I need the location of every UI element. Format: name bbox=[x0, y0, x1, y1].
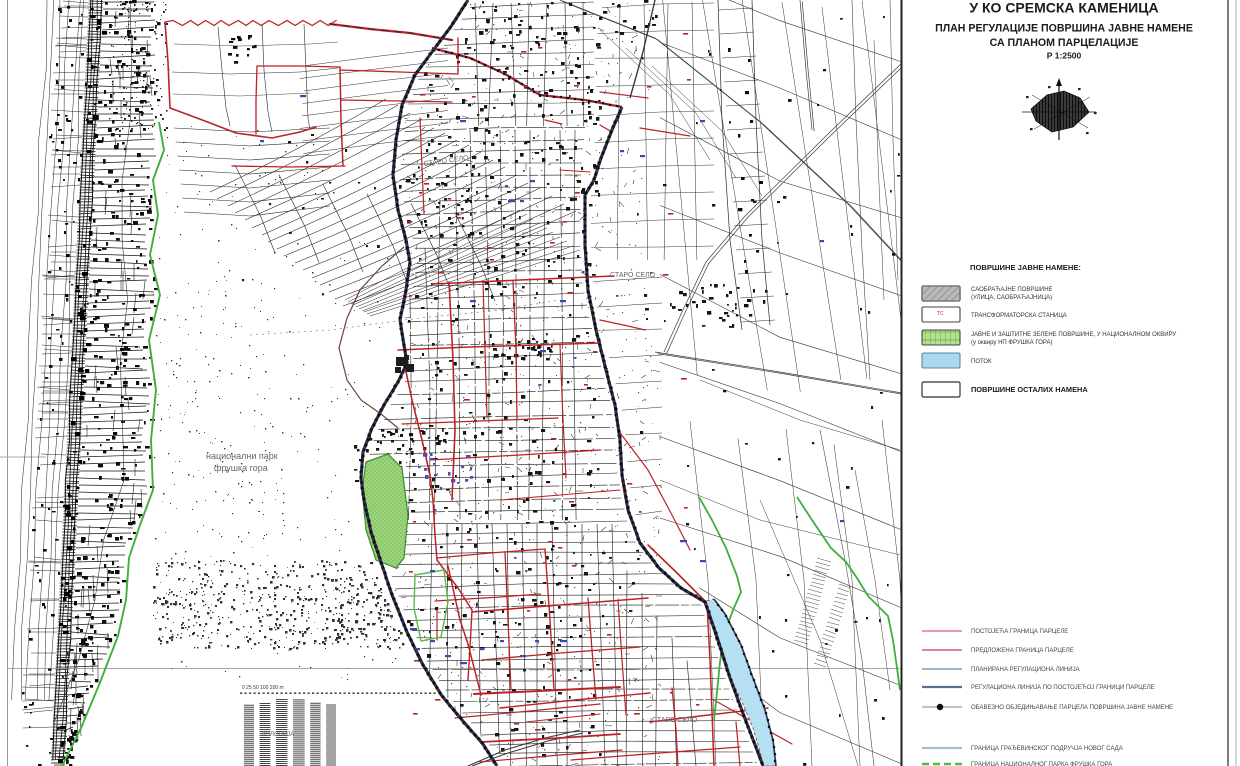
svg-text:КОЛОНИЈА: КОЛОНИЈА bbox=[262, 732, 294, 738]
svg-text:ПОТОК: ПОТОК bbox=[971, 359, 992, 365]
svg-text:ГРАНИЦА НАЦИОНАЛНОГ ПАРКА ФРУШ: ГРАНИЦА НАЦИОНАЛНОГ ПАРКА ФРУШКА ГОРА bbox=[971, 762, 1112, 766]
svg-text:ПОВРШИНЕ ОСТАЛИХ НАМЕНА: ПОВРШИНЕ ОСТАЛИХ НАМЕНА bbox=[971, 385, 1088, 394]
svg-text:(УЛИЦА, САОБРАЋАЈНИЦА): (УЛИЦА, САОБРАЋАЈНИЦА) bbox=[971, 295, 1052, 301]
svg-text:ПОСТОЈЕЋА ГРАНИЦА ПАРЦЕЛЕ: ПОСТОЈЕЋА ГРАНИЦА ПАРЦЕЛЕ bbox=[971, 629, 1068, 635]
svg-text:ОБАВЕЗНО ОБЈЕДИЊАВАЊЕ ПАРЦЕЛА: ОБАВЕЗНО ОБЈЕДИЊАВАЊЕ ПАРЦЕЛА ПОВРШИНА Ј… bbox=[971, 705, 1173, 711]
svg-text:ЈАВНЕ И ЗАШТИТНЕ ЗЕЛЕНЕ ПОВРШИ: ЈАВНЕ И ЗАШТИТНЕ ЗЕЛЕНЕ ПОВРШИНЕ, У НАЦИ… bbox=[971, 332, 1176, 338]
svg-text:СТАРО СЕЛО: СТАРО СЕЛО bbox=[652, 717, 698, 724]
svg-text:0 25 50 100: 0 25 50 100 200 m bbox=[242, 685, 284, 691]
svg-text:У КО СРЕМСКА КАМЕНИЦА: У КО СРЕМСКА КАМЕНИЦА bbox=[969, 0, 1158, 16]
svg-text:(у оквиру НП ФРУШКА ГОРА): (у оквиру НП ФРУШКА ГОРА) bbox=[971, 340, 1053, 346]
svg-text:СА ПЛАНОМ ПАРЦЕЛАЦИЈЕ: СА ПЛАНОМ ПАРЦЕЛАЦИЈЕ bbox=[990, 37, 1139, 49]
svg-text:национални парк: национални парк bbox=[206, 451, 278, 461]
svg-text:ПРЕДЛОЖЕНА ГРАНИЦА ПАРЦЕЛЕ: ПРЕДЛОЖЕНА ГРАНИЦА ПАРЦЕЛЕ bbox=[971, 648, 1074, 654]
svg-text:ПОВРШИНЕ ЈАВНЕ НАМЕНЕ:: ПОВРШИНЕ ЈАВНЕ НАМЕНЕ: bbox=[970, 263, 1081, 272]
svg-text:ТС: ТС bbox=[937, 311, 944, 317]
svg-text:Р 1:2500: Р 1:2500 bbox=[1047, 51, 1082, 61]
svg-text:ГРАНИЦА ГРАЂЕВИНСКОГ ПОДРУЧЈА: ГРАНИЦА ГРАЂЕВИНСКОГ ПОДРУЧЈА НОВОГ САДА bbox=[971, 746, 1123, 752]
svg-text:ПЛАНИРАНА РЕГУЛАЦИОНА ЛИНИЈА: ПЛАНИРАНА РЕГУЛАЦИОНА ЛИНИЈА bbox=[971, 667, 1080, 673]
svg-text:ТРАНСФОРМАТОРСКА СТАНИЦА: ТРАНСФОРМАТОРСКА СТАНИЦА bbox=[971, 313, 1067, 319]
svg-text:САОБРАЋАЈНЕ ПОВРШИНЕ: САОБРАЋАЈНЕ ПОВРШИНЕ bbox=[971, 287, 1053, 293]
svg-text:РЕГУЛАЦИОНА ЛИНИЈА ПО ПОСТОЈЕЋ: РЕГУЛАЦИОНА ЛИНИЈА ПО ПОСТОЈЕЋОЈ ГРАНИЦИ… bbox=[971, 685, 1155, 691]
svg-text:фрушка гора: фрушка гора bbox=[214, 463, 268, 473]
svg-text:ПЛАН РЕГУЛАЦИЈЕ ПОВРШИНА ЈАВНЕ: ПЛАН РЕГУЛАЦИЈЕ ПОВРШИНА ЈАВНЕ НАМЕНЕ bbox=[935, 23, 1193, 35]
svg-text:СТАРО СЕЛО: СТАРО СЕЛО bbox=[610, 272, 656, 279]
